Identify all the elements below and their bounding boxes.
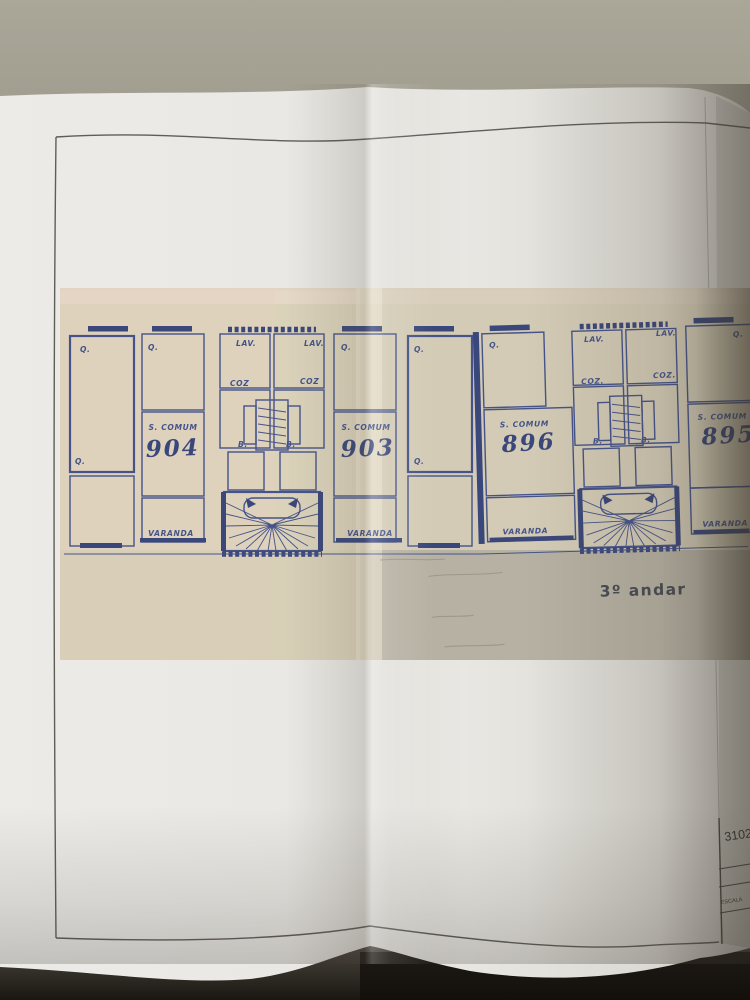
room-label-bedroom: Q. <box>414 345 425 354</box>
scan-smudge <box>380 559 445 560</box>
floor-label: 3º andar <box>599 580 686 600</box>
room-label-bathroom: B. <box>641 435 651 444</box>
unit-896-number: 896 <box>500 428 557 458</box>
floor-plan: Q. Q. Q. S. COMUM 904 VARANDA <box>60 288 750 660</box>
scan-fold-shadow <box>696 288 750 660</box>
unit-903-number: 903 <box>340 434 395 463</box>
room-label-bedroom: Q. <box>489 340 500 349</box>
room-label-kitchen: COZ. <box>581 376 604 386</box>
room-label-kitchen: COZ <box>300 377 319 386</box>
room-label-bathroom: B. <box>593 437 603 446</box>
balcony-label: VARANDA <box>347 529 393 538</box>
balcony-label: VARANDA <box>148 529 194 538</box>
unit-904-number: 904 <box>145 434 200 463</box>
room-label-living: S. COMUM <box>341 423 390 432</box>
room-label-bedroom: Q. <box>414 457 425 466</box>
photo-of-blueprint: 3102 ESCALA <box>0 0 750 1000</box>
room-label-laundry: LAV. <box>236 339 256 348</box>
balcony-label: VARANDA <box>502 526 548 536</box>
room-label-living: S. COMUM <box>148 423 197 432</box>
room-label-bathroom: B. <box>238 440 248 449</box>
room-label-laundry: LAV. <box>304 339 324 348</box>
room-label-kitchen: COZ <box>230 379 249 388</box>
scan-background <box>60 288 750 660</box>
room-label-bedroom: Q. <box>341 343 352 352</box>
room-label-bedroom: Q. <box>75 457 86 466</box>
room-label-kitchen: COZ. <box>653 370 676 380</box>
room-label-bedroom: Q. <box>80 345 91 354</box>
room-label-bedroom: Q. <box>148 343 159 352</box>
room-label-laundry: LAV. <box>656 328 676 338</box>
room-label-bathroom: B. <box>286 440 296 449</box>
room-label-laundry: LAV. <box>584 334 604 344</box>
scan-area: Q. Q. Q. S. COMUM 904 VARANDA <box>60 288 750 660</box>
